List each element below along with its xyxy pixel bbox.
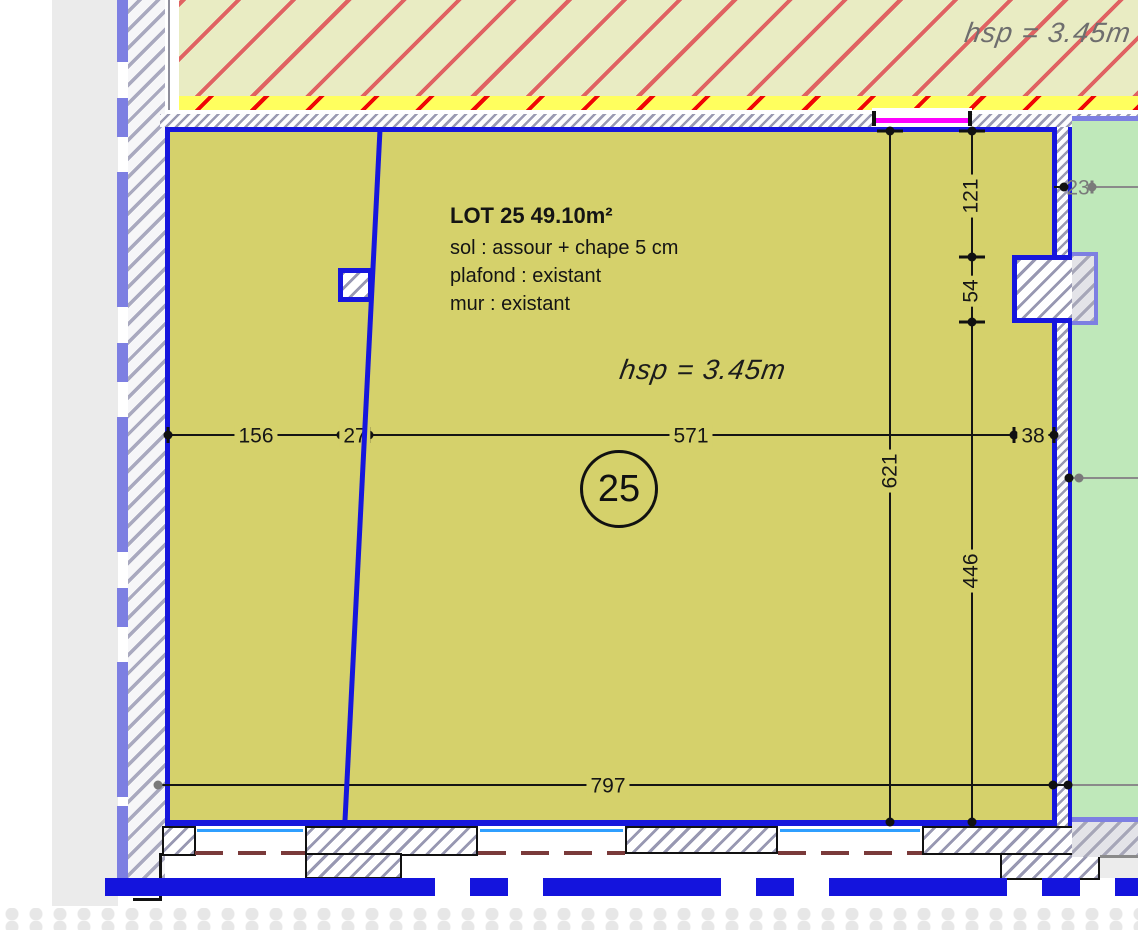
opening-dash-3 [778, 851, 922, 855]
dim-label-54: 54 [960, 275, 983, 306]
dim-dot [968, 818, 977, 827]
room-number-bubble: 25 [580, 450, 658, 528]
bottom-pier-b [305, 826, 478, 856]
bottom-texture [0, 908, 1138, 930]
divider-door-block [338, 268, 373, 302]
room-wall-spec: mur : existant [450, 293, 570, 316]
left-wall-hatch [128, 0, 165, 878]
window-sill-2 [480, 829, 623, 832]
bottom-pier-d-step [1000, 853, 1100, 880]
opening-dash-1 [195, 851, 305, 855]
opening-dash-2 [478, 851, 625, 855]
dim-label-571: 571 [669, 425, 712, 448]
bottom-pier-a [162, 826, 196, 856]
top-wall-hatch [160, 114, 1138, 127]
dim-label-38: 38 [1017, 425, 1048, 448]
room-title: LOT 25 49.10m² [450, 203, 613, 229]
dim-dot [1049, 781, 1058, 790]
bottom-pier-c [625, 826, 778, 854]
bottom-pier-b-step [305, 853, 402, 879]
room-floor-spec: sol : assour + chape 5 cm [450, 237, 678, 260]
dim-dot [1065, 474, 1074, 483]
opening-magenta-lintel [876, 118, 968, 123]
opening-right-jamb [968, 111, 972, 126]
room-adjacent-green [1072, 116, 1138, 822]
left-wall-dashed-line [117, 0, 128, 879]
dim-label-156: 156 [234, 425, 277, 448]
dim-line-v-right [971, 131, 973, 822]
dim-dot [886, 818, 895, 827]
bottom-wall-dashed-line [105, 878, 1138, 896]
dim-dot [886, 127, 895, 136]
dim-label-23: 23 [1062, 177, 1093, 200]
partition-pier-left [1012, 255, 1072, 323]
exterior-ground [52, 0, 118, 906]
dim-dot [164, 431, 173, 440]
partition-pier-right [1072, 252, 1098, 325]
top-wall-opening [872, 108, 972, 127]
window-sill-3 [780, 829, 920, 832]
room-height-label: hsp = 3.45m [618, 354, 789, 386]
green-room-bottom-wall [1072, 822, 1138, 857]
dim-line-h-main [168, 434, 1054, 436]
dim-label-621: 621 [879, 449, 902, 492]
dim-label-797: 797 [586, 775, 629, 798]
dim-dot [968, 253, 977, 262]
dim-label-446: 446 [960, 549, 983, 592]
dim-dot [968, 127, 977, 136]
ceiling-height-label: hsp = 3.45m [963, 17, 1134, 49]
dim-dot [1075, 474, 1084, 483]
room-ceiling-spec: plafond : existant [450, 265, 601, 288]
upper-zone-left-frame [168, 0, 179, 110]
green-room-bottom-wall-light [1100, 858, 1138, 878]
dim-dot [1050, 431, 1059, 440]
dim-dot [968, 318, 977, 327]
room-number: 25 [598, 468, 640, 511]
left-wall-outline-horizontal [133, 898, 162, 901]
window-sill-1 [197, 829, 303, 832]
dim-label-121: 121 [960, 174, 983, 217]
floor-plan: hsp = 3.45m 156 27 5 [0, 0, 1138, 930]
dim-dot [154, 781, 163, 790]
dim-dot [1064, 781, 1073, 790]
upper-zone-yellow-strip [177, 96, 1138, 110]
dim-line-h-bottom-ext [1072, 784, 1138, 786]
